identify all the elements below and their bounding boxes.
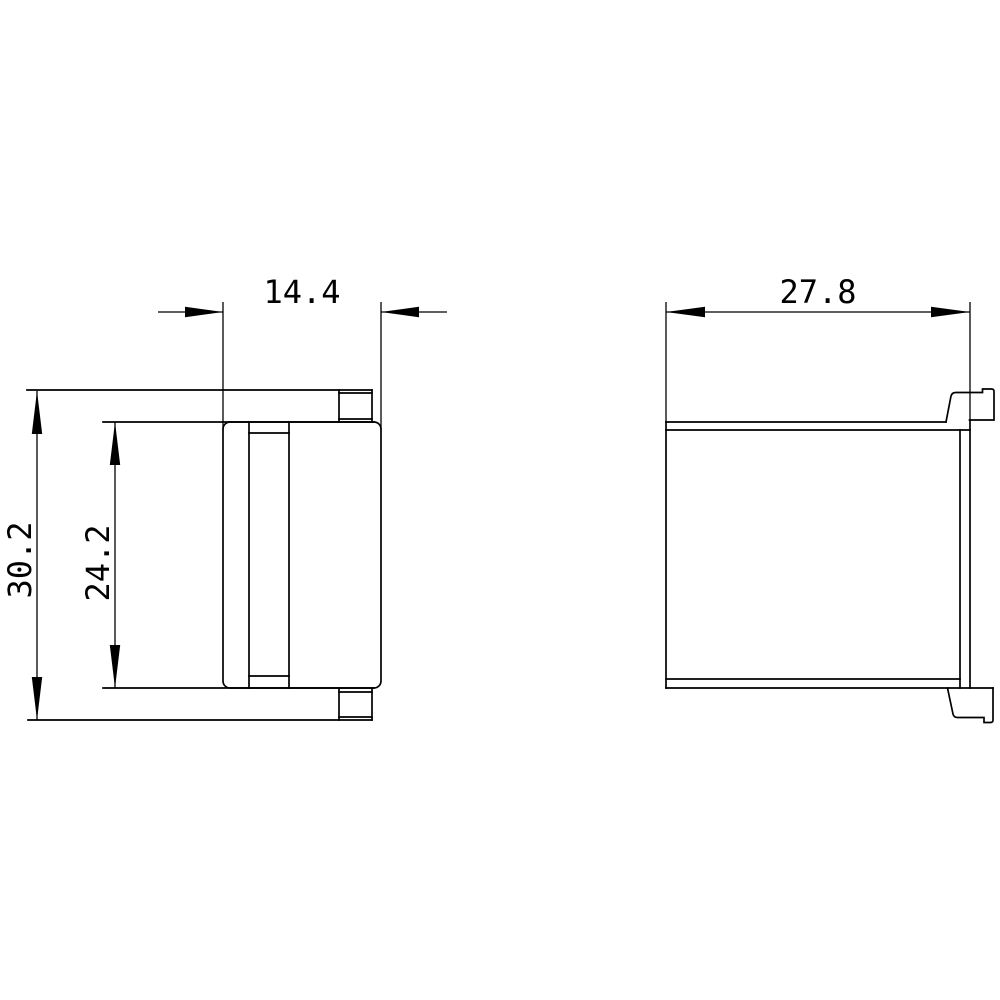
arrowhead-icon xyxy=(110,422,120,465)
part-outline-front xyxy=(666,389,994,723)
arrowhead-icon xyxy=(32,391,42,434)
dimension-label: 14.4 xyxy=(263,273,340,311)
dimension-overall-height: 30.2 xyxy=(1,391,42,720)
drawing-canvas: 14.4 30.2 24.2 xyxy=(0,0,1000,1000)
bottom-hook-outline xyxy=(948,688,994,723)
dimension-overall-width: 27.8 xyxy=(666,273,970,422)
arrowhead-icon xyxy=(381,307,419,317)
dimension-inner-height: 24.2 xyxy=(79,422,120,688)
dimension-body-width: 14.4 xyxy=(158,273,447,430)
dimension-label: 30.2 xyxy=(1,521,39,598)
dimension-drawing: 14.4 30.2 24.2 xyxy=(0,0,1000,1000)
arrowhead-icon xyxy=(931,307,970,317)
arrowhead-icon xyxy=(185,307,223,317)
left-view: 14.4 30.2 24.2 xyxy=(1,273,447,720)
arrowhead-icon xyxy=(666,307,705,317)
arrowhead-icon xyxy=(32,677,42,720)
dimension-label: 24.2 xyxy=(79,524,117,601)
arrowhead-icon xyxy=(110,645,120,688)
body-outline xyxy=(223,422,381,688)
right-view: 27.8 xyxy=(666,273,994,723)
dimension-label: 27.8 xyxy=(779,273,856,311)
